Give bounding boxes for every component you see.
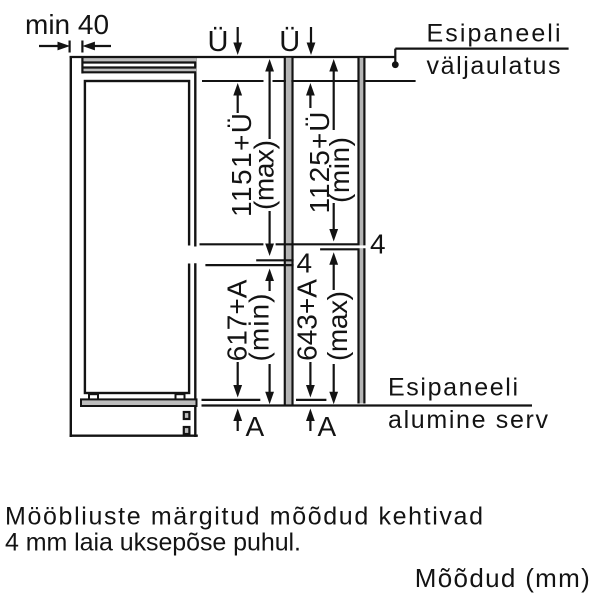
svg-text:4 mm laia uksepõse puhul.: 4 mm laia uksepõse puhul. — [5, 529, 301, 557]
svg-text:Mõõdud (mm): Mõõdud (mm) — [415, 563, 590, 593]
svg-text:643+A: 643+A — [292, 279, 323, 361]
svg-text:min 40: min 40 — [25, 9, 109, 40]
svg-text:väljaulatus: väljaulatus — [427, 52, 561, 80]
svg-text:A: A — [318, 411, 337, 442]
svg-text:(max): (max) — [322, 291, 353, 361]
svg-text:Esipaneeli: Esipaneeli — [427, 20, 561, 48]
svg-text:A: A — [246, 411, 265, 442]
svg-text:4: 4 — [370, 229, 386, 260]
svg-text:Esipaneeli: Esipaneeli — [388, 374, 518, 402]
svg-text:(min): (min) — [244, 294, 275, 362]
svg-text:(max): (max) — [249, 140, 280, 210]
svg-text:(min): (min) — [324, 137, 355, 203]
svg-text:Ü: Ü — [208, 26, 229, 58]
svg-text:4: 4 — [297, 248, 313, 279]
svg-text:Ü: Ü — [279, 26, 300, 58]
